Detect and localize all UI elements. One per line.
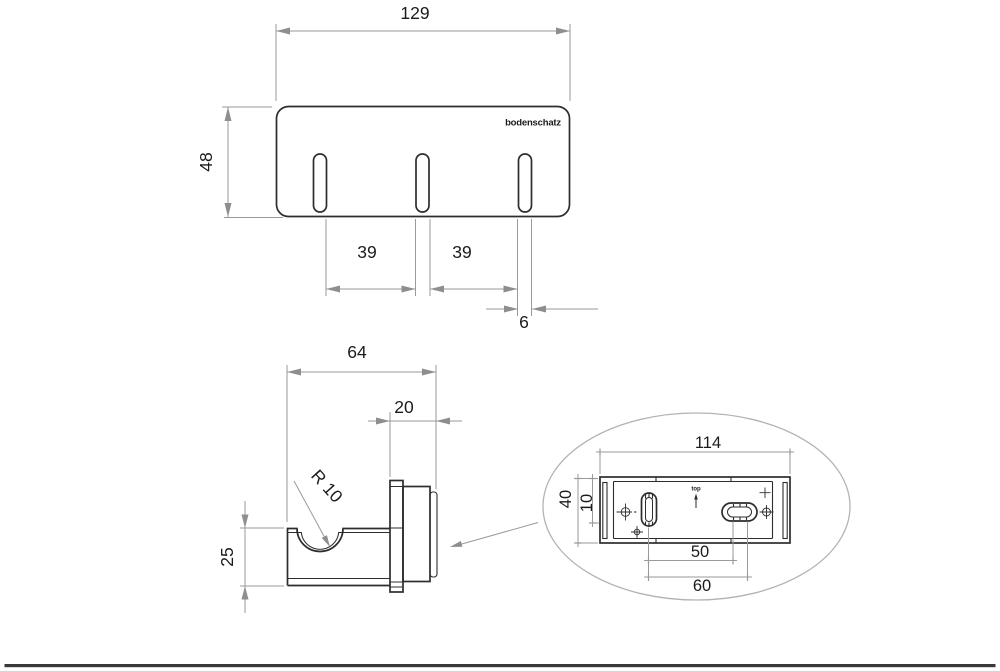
back-plate-edge: [430, 492, 437, 577]
arrowhead-left-icon: [276, 28, 290, 35]
arrowhead-left-icon: [326, 286, 340, 293]
slot-inner: [728, 507, 752, 517]
dim-height-48: 48: [196, 107, 283, 218]
centerlines: [617, 504, 637, 521]
arrowhead-right-icon: [504, 286, 518, 293]
dim-label-48: 48: [196, 152, 216, 171]
extension-lines: [276, 24, 570, 101]
dim-label-114: 114: [695, 434, 721, 452]
extension-lines: [430, 219, 518, 316]
centerlines: [760, 505, 774, 519]
pin-hole-small: [631, 526, 643, 538]
mount-flange-edge-lines: [390, 487, 403, 588]
detail-leader-arrowhead-icon: [450, 541, 462, 547]
arrowhead-top-icon: [225, 107, 232, 121]
dim-plate-width-114: 114: [596, 434, 794, 474]
screw-hole-right: [760, 505, 774, 519]
dim-label-39-left: 39: [357, 242, 376, 262]
dim-spacing-39-right: 39: [430, 219, 518, 316]
dim-label-129: 129: [400, 3, 429, 23]
arrowhead-right-icon: [532, 306, 546, 313]
dim-slot-spacing-50: 50: [644, 522, 737, 582]
technical-drawing-page: 129 48 bodenschatz 39: [0, 0, 1000, 671]
arrowhead-left-icon: [504, 306, 518, 313]
arrowhead-bottom-icon: [225, 203, 232, 217]
arrowhead-left-icon: [430, 286, 444, 293]
snap-slot-right: [783, 483, 787, 539]
hook-slot-3: [519, 154, 532, 212]
screw-hole-left: [617, 504, 637, 521]
keyhole-slot: [642, 493, 657, 527]
keyhole-inner: [646, 498, 653, 522]
extension-lines: [287, 365, 436, 522]
extension-lines: [222, 107, 283, 218]
snap-slot-left: [603, 483, 607, 539]
orientation-label: top: [691, 487, 701, 493]
arrowhead-top-icon: [242, 515, 249, 529]
dim-width-129: 129: [276, 3, 570, 101]
hook-slot-1: [314, 154, 327, 212]
extension-lines: [600, 455, 790, 474]
orientation-marker: top: [691, 487, 701, 509]
dim-label-50: 50: [691, 543, 709, 561]
dim-hook-width-6: 6: [486, 219, 598, 332]
dim-mount-depth-20: 20: [368, 397, 462, 477]
arrowhead-left-icon: [287, 369, 301, 376]
dim-label-10: 10: [578, 494, 596, 512]
dim-label-20: 20: [394, 397, 414, 417]
hook-slot-2: [416, 154, 429, 212]
detail-leader-line: [460, 523, 538, 545]
arrowhead-right-icon: [422, 369, 436, 376]
dim-hook-height-25: 25: [217, 501, 284, 613]
footer-rule: [5, 664, 996, 667]
detail-view: 114 40 10: [450, 413, 850, 600]
dim-label-25: 25: [217, 547, 237, 566]
arrowhead-bottom-icon: [242, 586, 249, 600]
dim-label-64: 64: [347, 342, 367, 362]
dim-top-offset-10: 10: [578, 474, 599, 527]
dim-spacing-39-left: 39: [326, 219, 416, 296]
mount-flange: [390, 481, 403, 593]
drawing-canvas: 129 48 bodenschatz 39: [0, 0, 1000, 671]
side-view: 64 20 25 R 10: [217, 342, 462, 613]
arrowhead-right-icon: [436, 418, 450, 425]
dim-depth-64: 64: [287, 342, 436, 522]
arrowhead-left-icon: [376, 418, 390, 425]
mount-body: [403, 487, 430, 582]
center-mark-plus-icon: [760, 488, 771, 499]
dim-label-39-right: 39: [452, 242, 471, 262]
up-arrow-icon: [694, 494, 698, 500]
arrowhead-right-icon: [556, 28, 570, 35]
dim-label-60: 60: [693, 577, 711, 595]
brand-logo: bodenschatz: [505, 118, 561, 129]
arrowhead-right-icon: [402, 286, 416, 293]
dim-label-40: 40: [557, 490, 575, 508]
adjustment-slot: [722, 503, 757, 521]
front-view: 129 48 bodenschatz 39: [196, 3, 598, 332]
leader-arrowhead-icon: [322, 535, 330, 547]
dim-label-6: 6: [519, 312, 529, 332]
centerlines: [631, 526, 643, 538]
extension-lines: [240, 528, 284, 586]
radius-label: R 10: [307, 466, 347, 507]
